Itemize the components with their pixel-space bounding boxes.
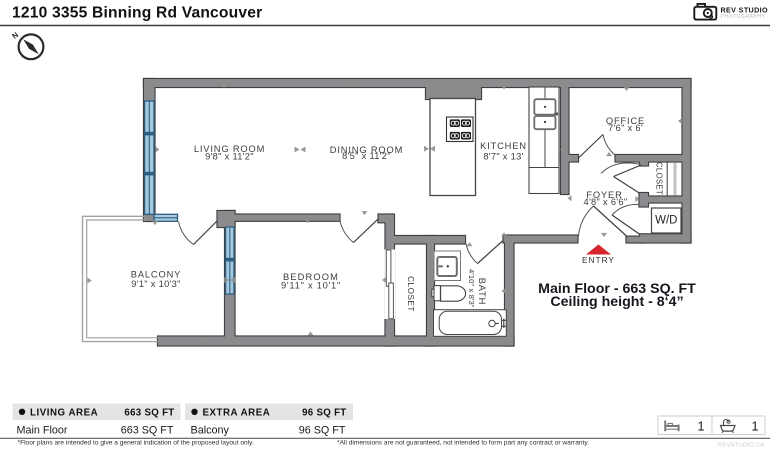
svg-text:1210 3355 Binning Rd Vancouver: 1210 3355 Binning Rd Vancouver [12,4,262,21]
svg-text:4'8" x 6'6": 4'8" x 6'6" [584,197,628,207]
svg-text:REVSTUDIO.CA: REVSTUDIO.CA [718,443,765,449]
svg-text:9'8" x 11'2": 9'8" x 11'2" [205,152,254,162]
svg-text:CLOSET: CLOSET [655,162,664,195]
svg-text:4'10" x 8'3": 4'10" x 8'3" [467,269,476,308]
svg-text:ENTRY: ENTRY [582,255,615,265]
svg-text:8'5" x 11'2": 8'5" x 11'2" [342,151,391,161]
svg-text:LIVING AREA: LIVING AREA [30,408,98,419]
svg-text:W/D: W/D [655,214,677,226]
svg-text:*Floor plans are intended to g: *Floor plans are intended to give a gene… [18,440,254,447]
svg-text:KITCHEN: KITCHEN [480,141,527,151]
svg-text:663 SQ FT: 663 SQ FT [124,408,174,419]
svg-text:EXTRA AREA: EXTRA AREA [203,408,271,419]
svg-text:1: 1 [752,419,759,433]
svg-text:9'11" x 10'1": 9'11" x 10'1" [281,281,341,291]
svg-text:9'1" x 10'3": 9'1" x 10'3" [131,279,180,289]
svg-text:8'7" x 13': 8'7" x 13' [483,152,523,162]
svg-text:1: 1 [698,419,705,433]
svg-text:CLOSET: CLOSET [406,276,415,312]
svg-text:7'6" x 6': 7'6" x 6' [608,123,643,133]
svg-text:Ceiling height - 8‘4”: Ceiling height - 8‘4” [550,294,683,310]
svg-text:BATH: BATH [477,278,487,306]
svg-text:96 SQ FT: 96 SQ FT [299,424,346,436]
svg-text:*All dimensions are not guaran: *All dimensions are not guaranteed, not … [337,440,589,447]
svg-text:663 SQ FT: 663 SQ FT [121,424,174,436]
svg-text:Main Floor: Main Floor [17,424,68,436]
svg-text:96 SQ FT: 96 SQ FT [302,408,346,419]
svg-text:Balcony: Balcony [191,424,230,436]
svg-text:PHOTOGRAPHY: PHOTOGRAPHY [721,14,766,20]
svg-text:N: N [10,30,20,40]
